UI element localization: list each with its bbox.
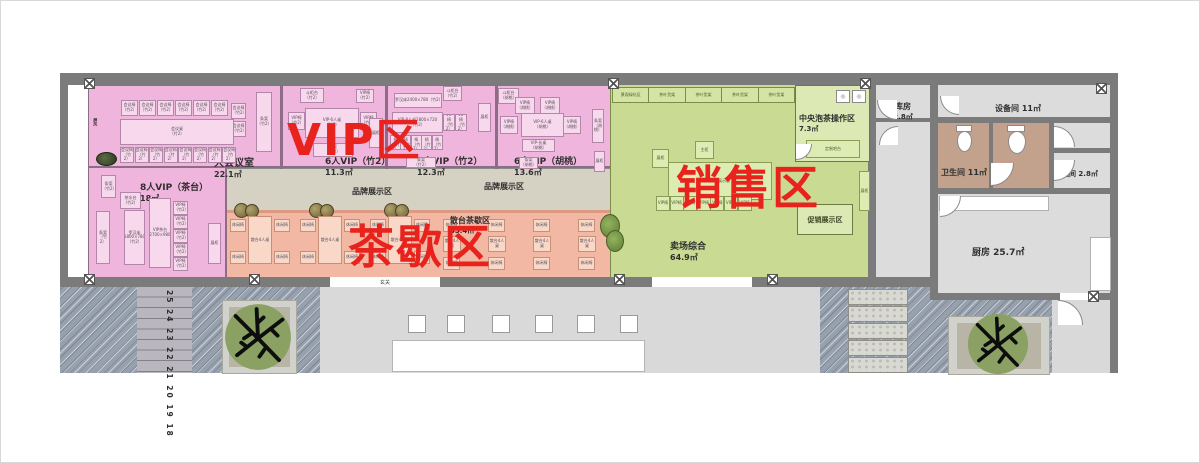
shelf-cell: 茶叶货架 (685, 88, 721, 102)
furniture-leisure-chair: 休闲椅 (300, 251, 316, 264)
wall-storage2-top (1054, 148, 1110, 153)
furniture-vip-long-h: VIP-长桌 （胡桃） (522, 139, 555, 152)
stone-step (848, 357, 908, 373)
furniture-leisure-chair: 休闲椅 (300, 219, 316, 232)
furniture-meeting-chair: 会议椅 （竹2） (149, 147, 163, 163)
furniture-scatter-table: 散台4人桌 (248, 216, 272, 264)
shelf-cell: 景观绿化区 (613, 88, 648, 102)
zone-title-tea: 茶歇区 (348, 211, 492, 277)
furniture-meeting-chair: 会议椅 （竹2） (139, 100, 156, 116)
furniture-vip-chair-h: VIP椅 （胡桃） (500, 116, 518, 134)
furniture-scatter-table: 散台4人桌 (578, 236, 596, 252)
wall-kitchen-top (938, 188, 1118, 194)
wall-top (60, 73, 1118, 85)
wall-bottom-main (60, 277, 937, 287)
furniture-leisure-chair: 休闲椅 (230, 251, 246, 264)
room-label-equipment: 设备间 11㎡ (938, 94, 1098, 115)
furniture-meeting-chair: 会议椅 （竹2） (157, 100, 174, 116)
wall-storeroom-right (930, 85, 938, 293)
furniture-vip-chair: VIP椅 (656, 196, 670, 211)
sink-icon (852, 90, 866, 103)
furniture-meeting-chair: 会议椅 （竹2） (164, 147, 178, 163)
shelf-cell: 茶叶货架 (648, 88, 684, 102)
column-marker (767, 274, 778, 285)
room-label-sales-floor: 卖场综合 64.9㎡ (670, 230, 706, 275)
wall-vip-divider (280, 85, 283, 169)
furniture-leisure-chair: 休闲椅 (274, 219, 290, 232)
sink-icon (836, 90, 850, 103)
zone-title-vip: VIP区 (287, 104, 422, 168)
furniture-leisure-chair: 休闲椅 (274, 251, 290, 264)
column-marker (614, 274, 625, 285)
furniture-vip-chair-z: VIP椅 （竹2） (173, 229, 188, 243)
column-marker (1096, 83, 1107, 94)
furniture-vip-chair-z: VIP椅 （竹2） (356, 89, 374, 103)
furniture-tiaoan-h: 条案 （胡桃） (592, 109, 604, 143)
furniture-dougui-z: 斗柜台 （竹2） (300, 88, 324, 103)
wall-left (60, 73, 68, 287)
furniture-vip-chair-z: VIP椅 （竹2） (421, 135, 432, 150)
corridor (876, 122, 930, 277)
column-marker (608, 78, 619, 89)
furniture-display-cab: 展柜 (594, 151, 605, 172)
furniture-scatter-table: 散台4人桌 (318, 216, 342, 264)
shelf-cell: 茶叶货架 (758, 88, 794, 102)
column-marker (84, 78, 95, 89)
furniture-vip-chair-z: VIP椅 （竹2） (443, 114, 455, 131)
furniture-tiaoan-h: 条案 （胡桃） (519, 157, 538, 169)
wall-equipment-bottom (938, 117, 1118, 123)
stone-step (848, 289, 908, 305)
furniture-vip-chair-z: VIP椅 （竹2） (173, 243, 188, 257)
room-label-restroom: 卫生间 11㎡ (941, 158, 987, 179)
furniture-meeting-chair: 会议椅 （竹2） (231, 103, 246, 119)
room-label-brand2: 品牌展示区 (484, 172, 524, 193)
furniture-vip-chair-z: VIP椅 （竹2） (455, 114, 467, 131)
furniture-meeting-chair: 会议椅 （竹2） (135, 147, 149, 163)
tree (223, 302, 293, 372)
column (447, 315, 465, 333)
furniture-tiaoan-z: 条案 （竹2） (96, 211, 110, 264)
furniture-meeting-chair: 会议椅 （竹2） (121, 100, 138, 116)
stone-step (848, 306, 908, 322)
column (620, 315, 638, 333)
stair-numbers: 25 24 23 22 21 20 19 18 (165, 290, 174, 438)
furniture-vip-chair-h: VIP椅 （胡桃） (515, 97, 535, 114)
furniture-meeting-chair: 会议椅 （竹2） (211, 100, 228, 116)
plant-icon (96, 152, 117, 166)
furniture-meeting-chair: 会议椅 （竹2） (120, 147, 134, 163)
furniture-display-cab: 展柜 (208, 223, 221, 264)
floor-plan: 25 24 23 22 21 20 19 18 (0, 0, 1200, 463)
furniture-meeting-chair: 会议椅 （竹2） (178, 147, 192, 163)
column (408, 315, 426, 333)
furniture-display-cab: 展柜 (478, 103, 491, 132)
column-marker (249, 274, 260, 285)
room-label-central-tea: 中央泡茶操作区 7.3㎡ (799, 104, 855, 144)
furniture-leisure-chair: 休闲椅 (578, 257, 595, 270)
column-marker (84, 274, 95, 285)
furniture-tea-table: VIP茶台 2700×980 (149, 198, 171, 268)
furniture-display-cab: 展柜 (652, 149, 669, 168)
main-entrance-gap (652, 277, 752, 287)
entrance-platform (392, 340, 645, 372)
furniture-meeting-chair: 会议椅 （竹2） (193, 100, 210, 116)
entrance-strip: 玄关 (330, 277, 440, 287)
tree (966, 312, 1030, 376)
furniture-vip-chair-z: VIP椅 （竹2） (432, 135, 443, 150)
furniture-water-station: 茶水台 （竹2） (120, 192, 141, 209)
furniture-dougui-z: 斗柜台 （竹2） (443, 86, 462, 101)
furniture-vip-chair-z: VIP椅 （竹2） (173, 215, 188, 229)
column-marker (1088, 291, 1099, 302)
column-marker (860, 78, 871, 89)
furniture-vip-chair-h: VIP椅 （胡桃） (563, 116, 581, 134)
column (535, 315, 553, 333)
kitchen-door-gap (1060, 293, 1088, 300)
furniture-meeting-chair: 会议椅 （竹2） (222, 147, 236, 163)
furniture-vip-chair-h: VIP椅 （胡桃） (540, 97, 560, 114)
room-label-kitchen: 厨房 25.7㎡ (972, 236, 1024, 259)
shelf-cell: 茶叶货架 (721, 88, 757, 102)
room-label-brand1: 品牌展示区 (352, 177, 392, 198)
furniture-vip6-table-h: VIP-6人桌 （胡桃） (521, 113, 564, 137)
furniture-meeting-chair: 会议椅 （竹2） (175, 100, 192, 116)
furniture-leisure-chair: 休闲椅 (533, 219, 550, 232)
furniture-display-cab: 展柜 (859, 171, 870, 211)
kitchen-counter (1090, 237, 1111, 291)
stone-step (848, 340, 908, 356)
plant-icon (606, 230, 624, 252)
entrance-label: 玄关 (380, 279, 390, 286)
air-gap (68, 85, 88, 277)
stone-step (848, 323, 908, 339)
furniture-tiaoan-z: 条案 （竹2） (101, 175, 116, 198)
column (492, 315, 510, 333)
zone-title-sales: 销售区 (676, 152, 820, 218)
furniture-tiaoan-z: 条案 （竹2） (256, 92, 272, 152)
column (577, 315, 595, 333)
screen-label: 屏风 (93, 118, 103, 126)
furniture-meeting-chair: 会议椅 （竹2） (193, 147, 207, 163)
furniture-leisure-chair: 休闲椅 (230, 219, 246, 232)
furniture-vip-chair-z: VIP椅 （竹2） (173, 257, 188, 271)
furniture-leisure-chair: 休闲椅 (578, 219, 595, 232)
furniture-leisure-chair: 休闲椅 (533, 257, 550, 270)
furniture-meeting-table: 会议桌 （竹2） (120, 119, 234, 145)
furniture-scatter-table: 散台4人桌 (533, 236, 551, 252)
furniture-luohan18: 罗汉床 1800×780 （竹2） (124, 210, 145, 265)
furniture-vip-chair-z: VIP椅 （竹2） (173, 201, 188, 215)
furniture-meeting-chair: 会议椅 （竹2） (208, 147, 222, 163)
